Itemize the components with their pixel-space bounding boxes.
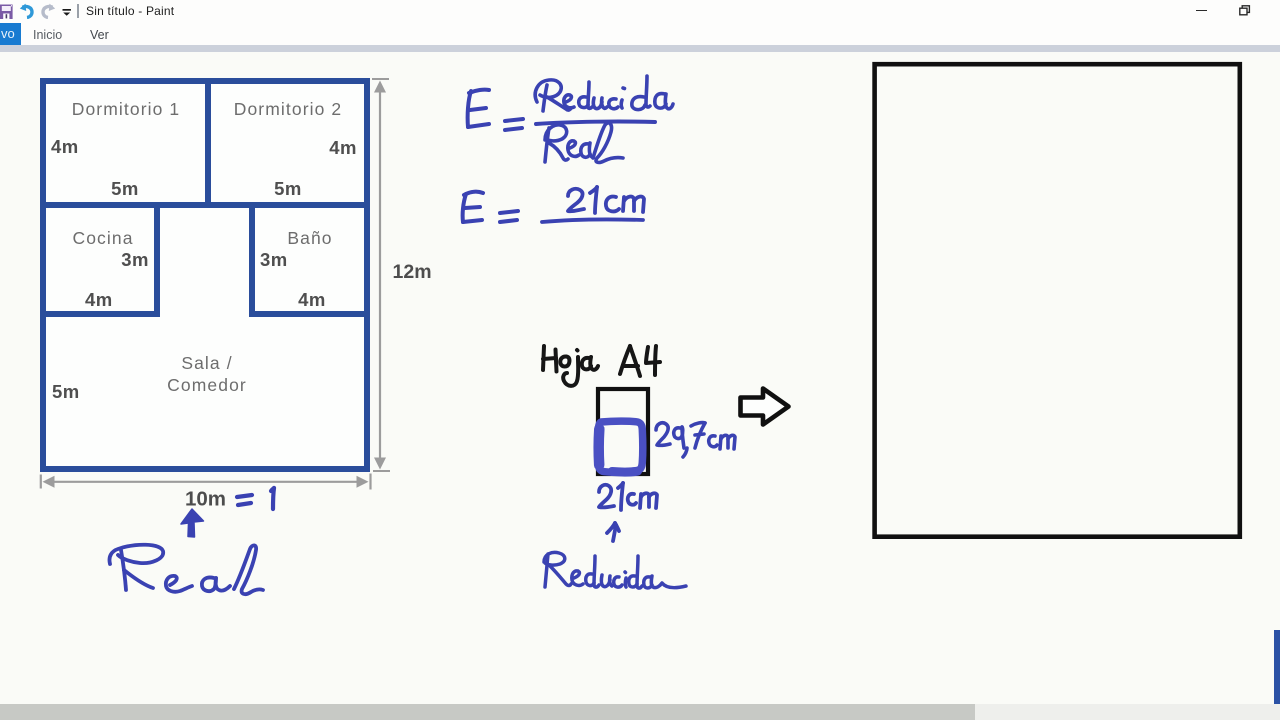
svg-text:5m: 5m (111, 178, 139, 199)
svg-text:4m: 4m (51, 136, 79, 157)
svg-text:Comedor: Comedor (167, 375, 247, 395)
svg-text:10m: 10m (185, 488, 226, 511)
svg-text:Dormitorio 1: Dormitorio 1 (72, 99, 181, 119)
svg-text:3m: 3m (260, 249, 288, 270)
svg-text:Sala /: Sala / (181, 353, 232, 373)
svg-text:3m: 3m (121, 249, 149, 270)
svg-text:Cocina: Cocina (72, 228, 133, 248)
svg-text:5m: 5m (52, 381, 80, 402)
svg-text:4m: 4m (85, 289, 113, 310)
svg-text:4m: 4m (329, 137, 357, 158)
svg-text:5m: 5m (274, 178, 302, 199)
svg-text:4m: 4m (298, 289, 326, 310)
svg-text:Dormitorio 2: Dormitorio 2 (234, 99, 343, 119)
svg-text:12m: 12m (393, 261, 432, 283)
svg-text:Baño: Baño (287, 228, 332, 248)
